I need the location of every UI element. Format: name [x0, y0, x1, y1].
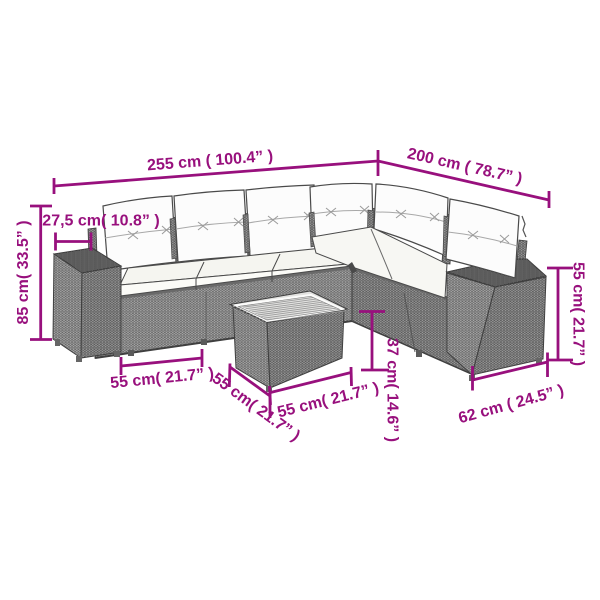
svg-text:27,5 cm( 10.8” ): 27,5 cm( 10.8” )	[42, 213, 159, 230]
svg-text:55 cm( 21.7” ): 55 cm( 21.7” )	[569, 262, 586, 366]
svg-text:85 cm( 33.5” ): 85 cm( 33.5” )	[15, 220, 32, 324]
svg-text:37 cm( 14.6” ): 37 cm( 14.6” )	[383, 338, 400, 442]
